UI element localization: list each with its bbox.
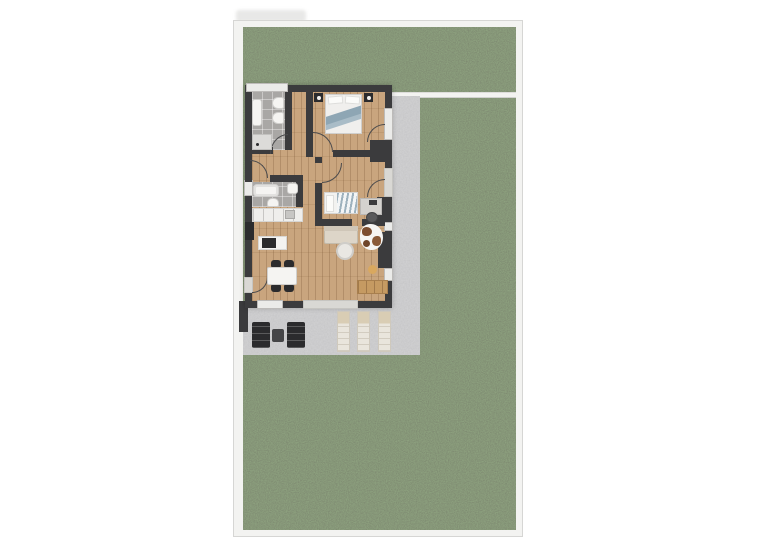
sideboard [357,280,388,294]
wall-block-mid-right [370,140,392,162]
bathtub [253,184,279,197]
sun-lounger [378,311,391,352]
toilet [272,97,284,109]
washbasin [287,183,298,194]
window-right-small [384,222,393,231]
daybed-pillow [326,195,334,212]
terrace-lounge-chair [252,322,270,348]
cowhide-patch [372,236,381,246]
shower-drain [256,143,259,146]
wall-study-left-a [315,157,322,163]
pouf [368,265,377,274]
lamp-left [317,96,321,100]
sun-lounger [357,311,370,352]
double-bed [325,94,362,134]
lamp-right [367,96,371,100]
pillow [345,95,361,104]
wall-bedroom-bottom-a [306,150,313,157]
terrace-side-table [272,329,284,342]
cowhide-patch [362,227,372,236]
wall-bathroom-lower-top-b [270,175,303,182]
apartment [245,85,392,308]
desk-monitor [369,200,377,205]
dining-chair [271,260,281,267]
door-right-study [384,168,393,197]
wall-study-bottom-a [322,219,352,226]
window-bathroom-top [246,83,288,92]
window-bottom-dining [257,300,283,309]
toilet-lower [267,198,279,207]
window-left-bathroom-lower [244,180,253,196]
cooktop [262,238,276,248]
daybed-striped-duvet [337,193,358,214]
wall-bedroom-left [306,92,313,150]
cowhide-rug [360,224,383,250]
wall-left [245,85,252,308]
bidet [272,112,284,124]
round-rug [336,242,354,260]
window-right-bedroom [384,108,393,140]
dining-chair [284,260,294,267]
terrace-sliding-door [303,300,358,309]
sun-lounger [337,311,350,352]
sofa-back [324,226,358,231]
kitchen-sink [285,210,295,219]
office-chair [366,212,378,223]
kitchen-tall-appliance [245,222,254,240]
kitchen-counter [252,208,303,222]
cowhide-patch [363,240,370,247]
daybed [324,192,358,214]
dining-chair [284,285,294,292]
dining-chair [271,285,281,292]
wall-study-left-b [315,183,322,226]
vanity-sink [252,99,262,126]
terrace-lounge-chair [287,322,305,348]
pillow [328,95,344,104]
dining-table [267,267,297,285]
floor-plan-scene [0,0,768,560]
shower-tray [252,134,272,150]
